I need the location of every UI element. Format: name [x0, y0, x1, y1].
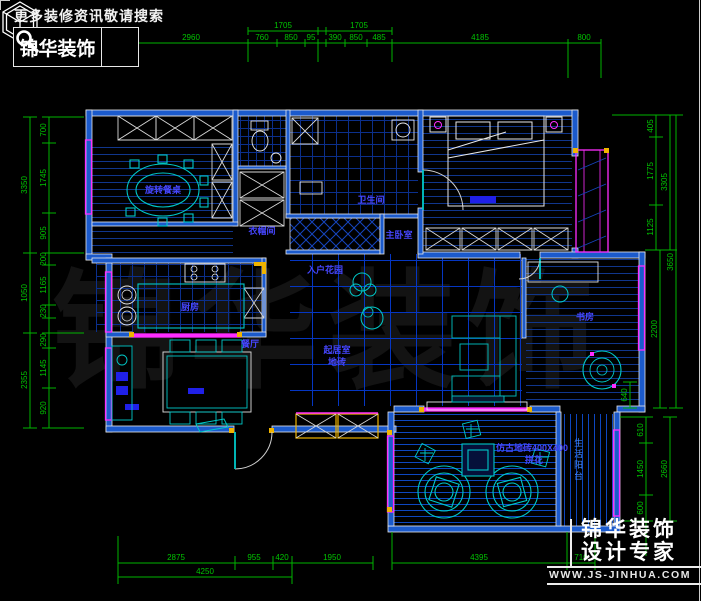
- dim-label: 405: [646, 119, 655, 133]
- dim-label: 290: [39, 333, 48, 347]
- dim-label: 2660: [660, 460, 669, 478]
- branding-rule-top: [547, 566, 701, 568]
- dim-label: 610: [636, 423, 645, 437]
- search-icon-cell: [101, 28, 138, 66]
- dim-label: 95: [307, 33, 316, 42]
- room-label-balcony-pattern: 拼花: [525, 454, 543, 465]
- cad-viewport: 锦华装饰: [0, 0, 701, 601]
- header-tagline: 更多装修资讯敬请搜索: [14, 6, 164, 26]
- dim-label: 420: [275, 553, 289, 562]
- dim-label: 230: [39, 304, 48, 318]
- dim-label: 760: [255, 33, 269, 42]
- dim-label: 1775: [646, 162, 655, 180]
- dim-label: 640: [620, 388, 629, 402]
- room-label-kitchen: 厨房: [181, 301, 199, 312]
- dim-label: 1705: [350, 21, 368, 30]
- dim-label: 1450: [636, 460, 645, 478]
- magnifier-icon: [14, 28, 40, 54]
- room-label-study: 书房: [576, 311, 594, 322]
- room-label-living-floor: 地砖: [328, 356, 346, 367]
- dim-label: 955: [247, 553, 261, 562]
- dim-label: 2200: [650, 320, 659, 338]
- bay-window-hatch: [578, 158, 606, 248]
- dim-label: 850: [284, 33, 298, 42]
- dim-label: 2960: [182, 33, 200, 42]
- dim-label: 4395: [470, 553, 488, 562]
- branding-line1: 锦华装饰: [581, 518, 677, 541]
- room-label-living: 起居室: [322, 344, 350, 355]
- dim-label: 905: [39, 226, 48, 240]
- dim-label: 850: [349, 33, 363, 42]
- dim-label: 2875: [167, 553, 185, 562]
- dim-label: 390: [328, 33, 342, 42]
- branding-rule-bottom: [547, 583, 701, 585]
- branding-name: 锦华装饰 设计专家: [581, 518, 677, 564]
- dim-label: 1705: [274, 21, 292, 30]
- branding-line2: 设计专家: [581, 541, 677, 564]
- dim-label: 1145: [39, 359, 48, 377]
- dim-label: 485: [372, 33, 386, 42]
- floorplan-drawing: 2960 1705 1705 760 850 95 390 850 485 41…: [0, 0, 701, 601]
- branding-divider: [570, 519, 572, 567]
- dim-label: 920: [39, 401, 48, 415]
- dim-label: 1050: [20, 284, 29, 302]
- room-label-master-bedroom: 主卧室: [385, 229, 412, 240]
- dim-label: 1745: [39, 169, 48, 187]
- dim-label: 3650: [666, 253, 675, 271]
- entry-door: [235, 432, 272, 469]
- room-label-dining-table: 旋转餐桌: [144, 184, 182, 195]
- dim-label: 700: [39, 123, 48, 137]
- room-label-foyer: 入户花园: [306, 264, 343, 275]
- dim-label: 1165: [39, 276, 48, 294]
- branding-url: WWW.JS-JINHUA.COM: [549, 569, 691, 581]
- dim-label: 1125: [646, 218, 655, 236]
- dim-label: 4185: [471, 33, 489, 42]
- dim-label: 1950: [323, 553, 341, 562]
- dim-label: 3305: [660, 173, 669, 191]
- room-label-dining: 餐厅: [240, 338, 259, 349]
- dim-label: 2355: [20, 371, 29, 389]
- dining-set: [112, 340, 251, 424]
- room-label-bathroom: 卫生间: [357, 194, 384, 205]
- room-label-side-balcony: 生活阳台: [572, 438, 585, 482]
- header-brand-box: 锦华装饰: [13, 27, 139, 67]
- room-label-balcony-floor: 仿古地砖400X400: [496, 442, 568, 453]
- dim-label: 3350: [20, 176, 29, 194]
- dim-label: 4250: [196, 567, 214, 576]
- dim-label: 600: [636, 501, 645, 515]
- dim-label: 200: [39, 252, 48, 266]
- room-label-cloakroom: 衣帽间: [248, 225, 275, 236]
- dim-label: 800: [577, 33, 591, 42]
